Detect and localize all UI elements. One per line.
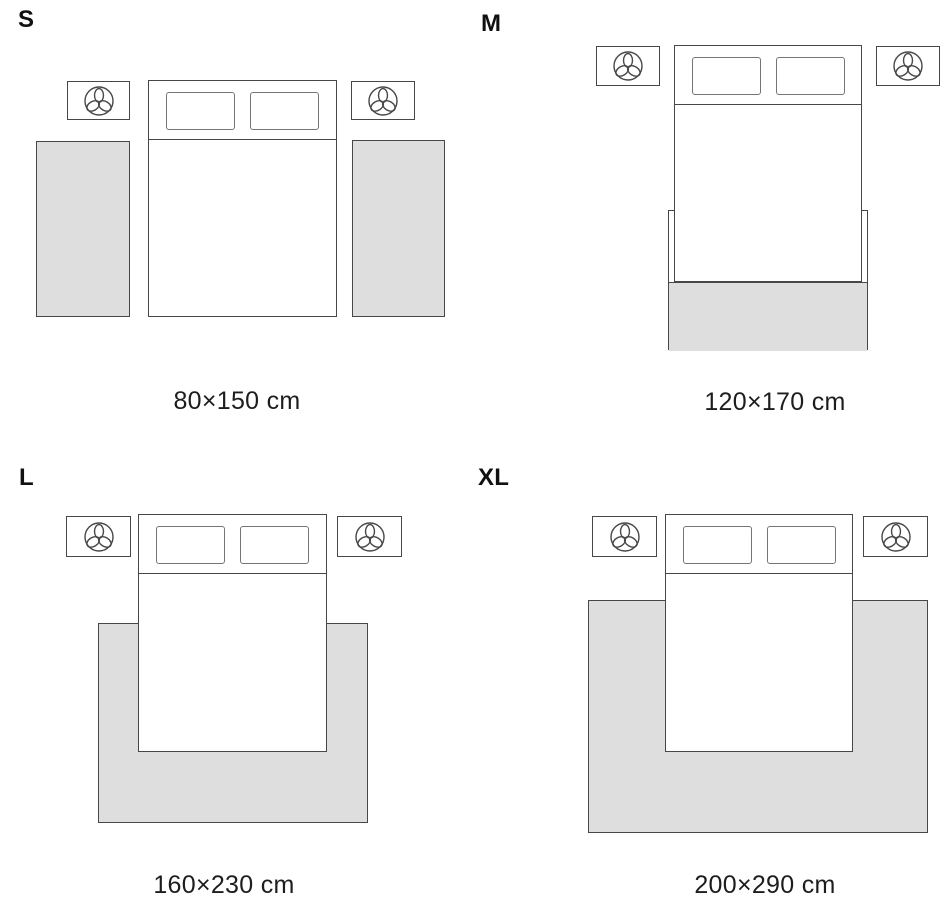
size-label-m: M <box>481 11 501 37</box>
bedside-rug-right <box>352 140 445 317</box>
nightstand-right <box>876 46 940 86</box>
pillow-left <box>156 526 225 564</box>
pillow-right <box>250 92 319 130</box>
nightstand-right <box>337 516 402 557</box>
plant-icon <box>608 520 642 554</box>
size-caption-m: 120×170 cm <box>675 388 875 417</box>
plant-icon <box>891 49 925 83</box>
plant-icon <box>611 49 645 83</box>
pillow-left <box>166 92 235 130</box>
pillow-left <box>692 57 761 95</box>
size-panel-xl: XL 200×290 cm <box>475 450 950 900</box>
bed-headboard-area <box>675 46 861 105</box>
size-caption-l: 160×230 cm <box>124 871 324 900</box>
bed <box>148 80 337 317</box>
size-caption-xl: 200×290 cm <box>665 871 865 900</box>
size-panel-l: L 160×230 cm <box>0 450 475 900</box>
nightstand-right <box>351 81 415 120</box>
bed <box>674 45 862 282</box>
plant-icon <box>82 84 116 118</box>
size-panel-m: M 120×170 cm <box>475 0 950 450</box>
nightstand-left <box>66 516 131 557</box>
nightstand-left <box>67 81 130 120</box>
bed <box>665 514 853 752</box>
pillow-left <box>683 526 752 564</box>
nightstand-left <box>592 516 657 557</box>
bedside-rug-left <box>36 141 130 317</box>
pillow-right <box>776 57 845 95</box>
bed-headboard-area <box>149 81 336 140</box>
plant-icon <box>82 520 116 554</box>
pillow-right <box>767 526 836 564</box>
bed-headboard-area <box>666 515 852 574</box>
size-panel-s: S 80×150 cm <box>0 0 475 450</box>
size-caption-s: 80×150 cm <box>137 387 337 416</box>
size-label-s: S <box>18 7 34 33</box>
size-label-l: L <box>19 465 34 491</box>
plant-icon <box>366 84 400 118</box>
size-label-xl: XL <box>478 465 509 491</box>
nightstand-right <box>863 516 928 557</box>
nightstand-left <box>596 46 660 86</box>
plant-icon <box>353 520 387 554</box>
bed <box>138 514 327 752</box>
plant-icon <box>879 520 913 554</box>
rug-visible-area <box>669 282 867 351</box>
pillow-right <box>240 526 309 564</box>
bed-headboard-area <box>139 515 326 574</box>
